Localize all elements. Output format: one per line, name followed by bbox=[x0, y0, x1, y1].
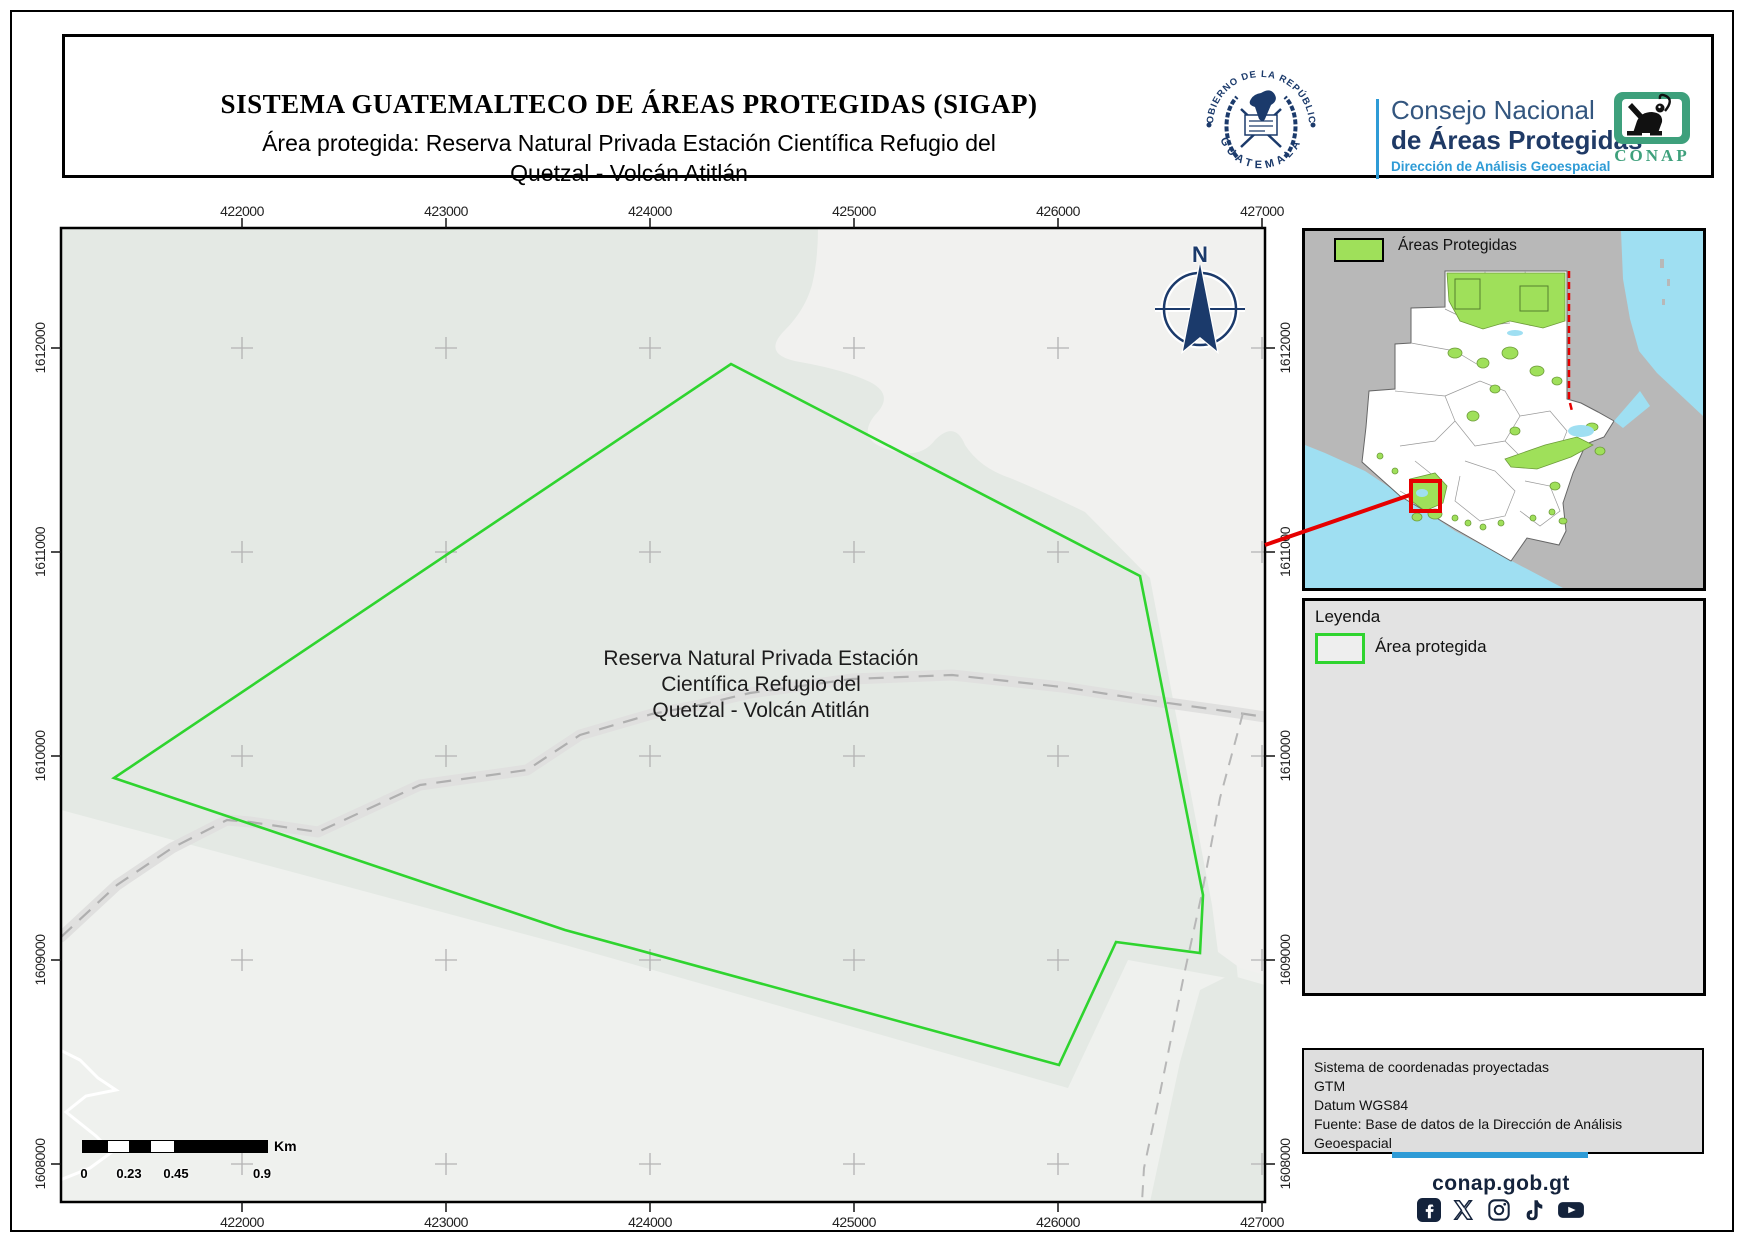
axis-label-y-right: 1608000 bbox=[1277, 1138, 1293, 1189]
protected-area-label: Reserva Natural Privada Estación Científ… bbox=[571, 646, 951, 724]
lake-peten-itza bbox=[1507, 330, 1523, 336]
youtube-icon[interactable] bbox=[1557, 1198, 1585, 1222]
scale-bar bbox=[82, 1140, 268, 1153]
scale-bar-label: 0.23 bbox=[116, 1166, 141, 1181]
axis-label-x-top: 422000 bbox=[220, 203, 264, 219]
legend-title: Leyenda bbox=[1315, 607, 1380, 627]
scale-bar-label: 0.45 bbox=[163, 1166, 188, 1181]
conap-logo-icon bbox=[1613, 91, 1691, 145]
axis-label-x-top: 427000 bbox=[1240, 203, 1284, 219]
axis-label-x-top: 423000 bbox=[424, 203, 468, 219]
axis-label-x-bottom: 422000 bbox=[220, 1214, 264, 1230]
council-name-line2: de Áreas Protegidas bbox=[1391, 125, 1642, 156]
scale-bar-label: 0.9 bbox=[253, 1166, 271, 1181]
overview-inset-map bbox=[1302, 228, 1706, 591]
axis-label-y-right: 1610000 bbox=[1277, 730, 1293, 781]
conap-wordmark: CONAP bbox=[1613, 146, 1691, 166]
projection-line: Datum WGS84 bbox=[1314, 1096, 1702, 1115]
axis-label-x-top: 426000 bbox=[1036, 203, 1080, 219]
page-title: SISTEMA GUATEMALTECO DE ÁREAS PROTEGIDAS… bbox=[129, 89, 1129, 120]
axis-label-y-left: 1611000 bbox=[32, 527, 48, 577]
x-icon[interactable] bbox=[1452, 1198, 1476, 1222]
axis-label-x-top: 425000 bbox=[832, 203, 876, 219]
axis-label-x-top: 424000 bbox=[628, 203, 672, 219]
conap-website-link[interactable]: conap.gob.gt bbox=[1302, 1172, 1700, 1196]
axis-label-x-bottom: 426000 bbox=[1036, 1214, 1080, 1230]
scale-bar-unit: Km bbox=[274, 1138, 297, 1154]
projection-info-panel: Sistema de coordenadas proyectadas GTM D… bbox=[1302, 1048, 1704, 1154]
social-icons-row bbox=[1302, 1198, 1700, 1222]
inset-legend-swatch bbox=[1335, 239, 1383, 261]
guatemala-overview bbox=[1305, 231, 1703, 588]
page-subtitle: Área protegida: Reserva Natural Privada … bbox=[129, 128, 1129, 188]
scale-bar-label: 0 bbox=[80, 1166, 87, 1181]
axis-label-x-bottom: 423000 bbox=[424, 1214, 468, 1230]
tiktok-icon[interactable] bbox=[1522, 1198, 1546, 1222]
header: SISTEMA GUATEMALTECO DE ÁREAS PROTEGIDAS… bbox=[62, 34, 1714, 178]
compass-north-label: N bbox=[1192, 242, 1208, 268]
facebook-icon[interactable] bbox=[1417, 1198, 1441, 1222]
instagram-icon[interactable] bbox=[1487, 1198, 1511, 1222]
government-seal-icon: GOBIERNO DE LA REPÚBLICA GUATEMALA bbox=[1199, 63, 1323, 187]
axis-label-x-bottom: 427000 bbox=[1240, 1214, 1284, 1230]
axis-label-y-left: 1612000 bbox=[32, 322, 48, 373]
axis-label-y-left: 1609000 bbox=[32, 934, 48, 985]
axis-label-y-left: 1610000 bbox=[32, 730, 48, 781]
axis-label-x-bottom: 424000 bbox=[628, 1214, 672, 1230]
council-direction-label: Dirección de Análisis Geoespacial bbox=[1391, 159, 1610, 174]
lake-izabal bbox=[1568, 425, 1594, 437]
axis-label-y-left: 1608000 bbox=[32, 1138, 48, 1189]
title-block: SISTEMA GUATEMALTECO DE ÁREAS PROTEGIDAS… bbox=[129, 89, 1129, 188]
logo-divider bbox=[1376, 99, 1379, 179]
projection-line: Fuente: Base de datos de la Dirección de… bbox=[1314, 1115, 1702, 1153]
legend-swatch bbox=[1315, 633, 1365, 664]
legend-item-label: Área protegida bbox=[1375, 637, 1487, 657]
legend-panel: Leyenda Área protegida bbox=[1302, 598, 1706, 996]
lake-atitlan bbox=[1416, 489, 1428, 497]
footer-divider bbox=[1392, 1152, 1588, 1158]
axis-label-y-right: 1612000 bbox=[1277, 322, 1293, 373]
projection-line: GTM bbox=[1314, 1077, 1702, 1096]
axis-label-x-bottom: 425000 bbox=[832, 1214, 876, 1230]
projection-line: Sistema de coordenadas proyectadas bbox=[1314, 1058, 1702, 1077]
axis-label-y-right: 1611000 bbox=[1277, 527, 1293, 577]
council-name-line1: Consejo Nacional bbox=[1391, 95, 1595, 126]
axis-label-y-right: 1609000 bbox=[1277, 934, 1293, 985]
map-document-page: SISTEMA GUATEMALTECO DE ÁREAS PROTEGIDAS… bbox=[0, 0, 1754, 1240]
inset-legend-label: Áreas Protegidas bbox=[1398, 237, 1517, 255]
